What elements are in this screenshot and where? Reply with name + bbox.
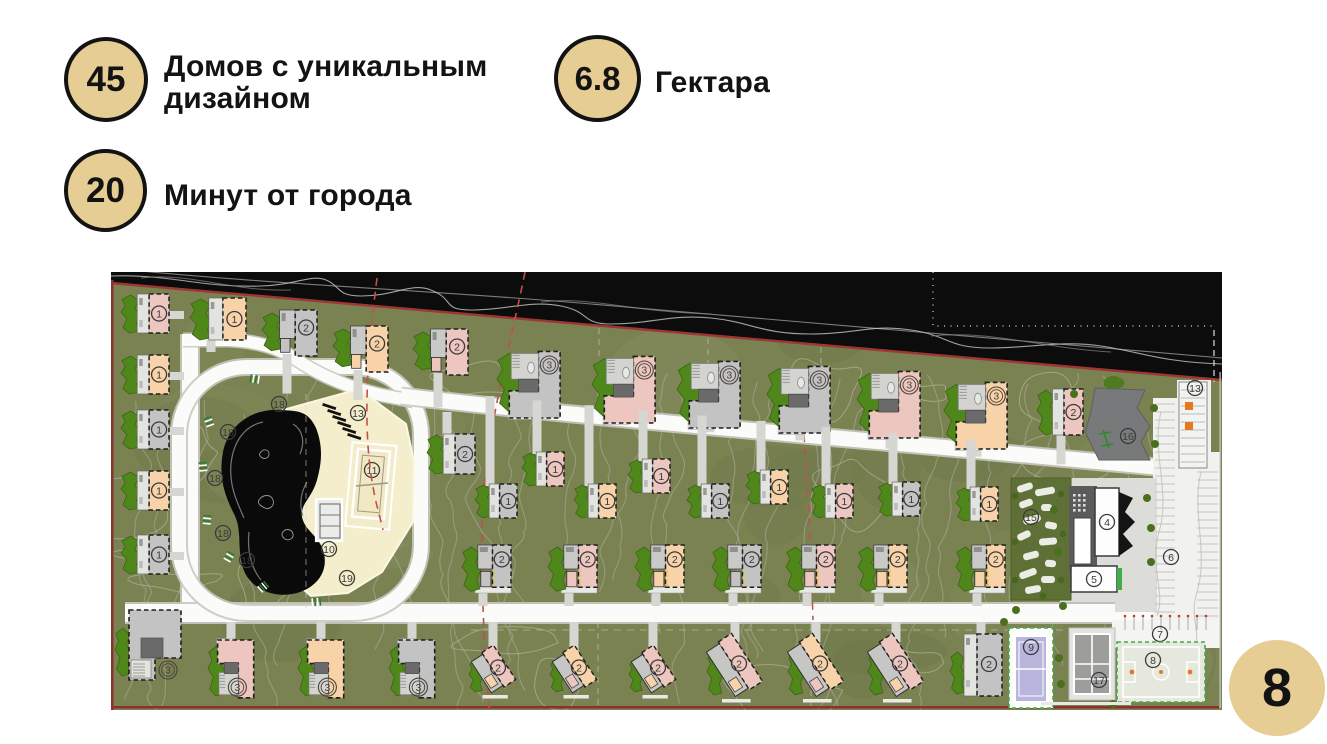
svg-text:2: 2: [303, 322, 309, 334]
svg-text:3: 3: [641, 365, 647, 377]
svg-text:2: 2: [823, 554, 829, 566]
svg-text:18: 18: [217, 528, 229, 540]
svg-text:2: 2: [499, 554, 505, 566]
svg-text:16: 16: [1122, 431, 1134, 443]
svg-text:2: 2: [749, 554, 755, 566]
svg-text:10: 10: [323, 544, 335, 556]
svg-text:3: 3: [906, 380, 912, 392]
svg-text:3: 3: [816, 375, 822, 387]
svg-text:13: 13: [352, 408, 364, 420]
svg-text:1: 1: [156, 549, 162, 561]
svg-text:11: 11: [367, 465, 378, 477]
svg-text:1: 1: [986, 499, 992, 511]
svg-text:1: 1: [604, 496, 610, 508]
svg-text:2: 2: [736, 658, 742, 670]
svg-text:1: 1: [156, 369, 162, 381]
svg-text:5: 5: [1091, 574, 1097, 586]
svg-text:18: 18: [273, 399, 285, 411]
svg-text:8: 8: [1150, 655, 1156, 667]
svg-text:2: 2: [672, 554, 678, 566]
svg-text:18: 18: [222, 427, 234, 439]
svg-text:4: 4: [1104, 517, 1110, 529]
svg-text:1: 1: [156, 485, 162, 497]
svg-text:19: 19: [341, 573, 353, 585]
svg-text:1: 1: [156, 308, 162, 320]
svg-text:2: 2: [1071, 407, 1077, 419]
svg-text:1: 1: [232, 314, 238, 326]
svg-text:3: 3: [993, 391, 999, 403]
svg-text:1: 1: [552, 464, 558, 476]
svg-text:3: 3: [324, 682, 330, 694]
svg-text:2: 2: [495, 662, 501, 674]
svg-text:15: 15: [1025, 512, 1037, 524]
svg-text:1: 1: [658, 471, 664, 483]
svg-text:7: 7: [1157, 629, 1163, 641]
svg-text:6: 6: [1168, 552, 1174, 564]
svg-text:17: 17: [1093, 675, 1105, 687]
svg-text:1: 1: [156, 424, 162, 436]
svg-text:2: 2: [897, 658, 903, 670]
svg-text:1: 1: [908, 494, 914, 506]
svg-text:2: 2: [454, 341, 460, 353]
svg-text:3: 3: [546, 360, 552, 372]
svg-text:2: 2: [655, 662, 661, 674]
svg-text:3: 3: [165, 665, 171, 677]
svg-text:2: 2: [585, 554, 591, 566]
svg-text:13: 13: [1189, 383, 1201, 395]
svg-text:2: 2: [895, 554, 901, 566]
svg-text:1: 1: [505, 496, 511, 508]
svg-text:18: 18: [209, 473, 221, 485]
svg-text:3: 3: [234, 682, 240, 694]
svg-text:3: 3: [415, 682, 421, 694]
svg-text:2: 2: [817, 658, 823, 670]
svg-text:2: 2: [993, 554, 999, 566]
svg-text:1: 1: [841, 496, 847, 508]
svg-text:3: 3: [726, 370, 732, 382]
svg-text:1: 1: [776, 482, 782, 494]
svg-text:9: 9: [1028, 642, 1034, 654]
svg-text:18: 18: [241, 555, 253, 567]
svg-text:2: 2: [576, 662, 582, 674]
svg-text:2: 2: [374, 338, 380, 350]
svg-text:1: 1: [717, 496, 723, 508]
svg-text:2: 2: [462, 449, 468, 461]
svg-text:2: 2: [986, 659, 992, 671]
